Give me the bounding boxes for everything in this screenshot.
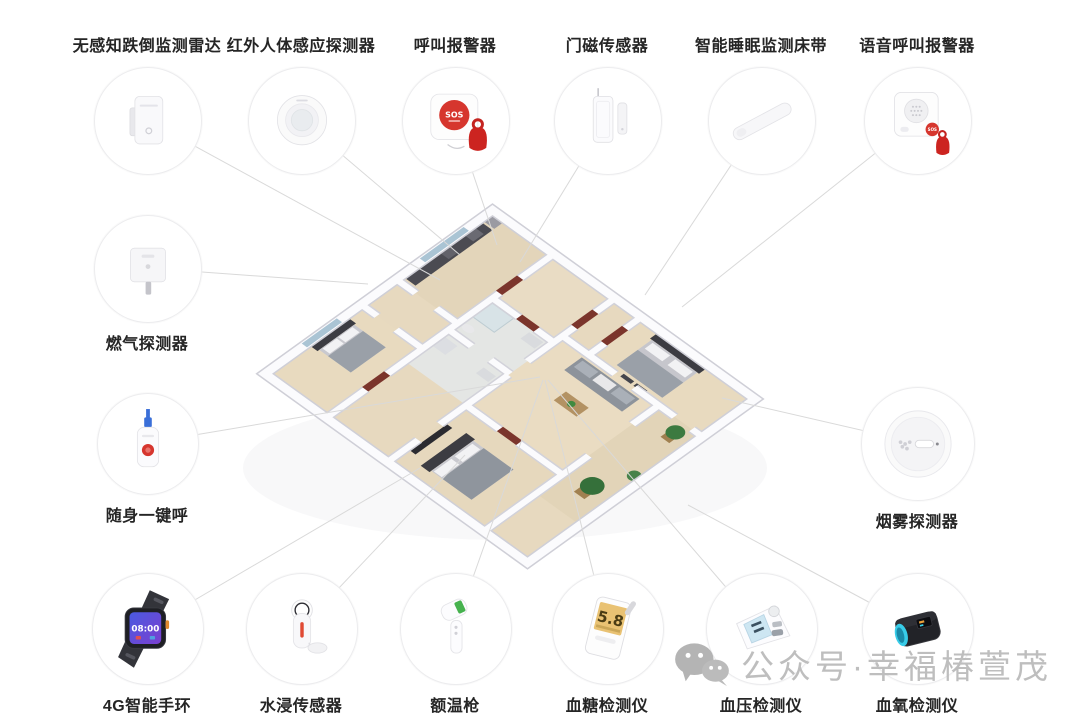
- device-forehead-thermometer: 额温枪: [400, 573, 510, 683]
- device-circle: 5.8: [552, 573, 664, 685]
- sos-call-alarm-icon: SOS: [414, 79, 498, 163]
- device-water-leak-sensor: 水浸传感器: [246, 573, 356, 683]
- sleep-monitor-strip-icon: [720, 79, 804, 163]
- infographic-canvas: 无感知跌倒监测雷达 红外人体感应探测器 呼叫报警器: [0, 0, 1080, 720]
- device-circle: [400, 573, 512, 685]
- device-circle: [97, 393, 199, 495]
- device-label: 血氧检测仪: [787, 692, 1047, 716]
- device-portable-sos-button: 随身一键呼: [97, 393, 197, 493]
- device-circle: [94, 67, 202, 175]
- device-circle: [248, 67, 356, 175]
- watch-time-text: 08:00: [131, 625, 159, 635]
- watermark: 公众号·幸福椿萱茂: [673, 640, 1052, 688]
- device-label: 燃气探测器: [17, 330, 277, 354]
- device-smart-watch-4g: 4G智能手环 08:00: [92, 573, 202, 683]
- smoke-detector-icon: [872, 398, 964, 490]
- voice-call-alarm-icon: SOS: [876, 79, 960, 163]
- water-leak-sensor-icon: [259, 586, 345, 672]
- forehead-thermometer-icon: [413, 586, 499, 672]
- device-smoke-detector: 烟雾探测器: [861, 387, 973, 499]
- device-voice-call-alarm: 语音呼叫报警器 SOS: [864, 67, 970, 173]
- device-glucose-meter: 血糖检测仪 5.8: [552, 573, 662, 683]
- device-circle: [861, 387, 975, 501]
- device-gas-detector: 燃气探测器: [94, 215, 200, 321]
- device-sos-call-alarm: 呼叫报警器 SOS: [402, 67, 508, 173]
- device-circle: [708, 67, 816, 175]
- device-pir-motion-sensor: 红外人体感应探测器: [248, 67, 354, 173]
- device-door-magnet-sensor: 门磁传感器: [554, 67, 660, 173]
- pir-motion-sensor-icon: [261, 80, 343, 162]
- glucose-meter-icon: 5.8: [564, 585, 652, 673]
- wechat-icon: [673, 640, 731, 688]
- sos-button-text: SOS: [445, 111, 464, 120]
- device-label: 随身一键呼: [17, 502, 277, 526]
- device-circle: [554, 67, 662, 175]
- device-label: 语音呼叫报警器: [787, 32, 1047, 56]
- device-circle: SOS: [864, 67, 972, 175]
- voice-alarm-badge-text: SOS: [928, 127, 937, 132]
- device-circle: [246, 573, 358, 685]
- smart-watch-4g-icon: 08:00: [104, 585, 192, 673]
- device-circle: 08:00: [92, 573, 204, 685]
- device-fall-radar: 无感知跌倒监测雷达: [94, 67, 200, 173]
- device-circle: SOS: [402, 67, 510, 175]
- portable-sos-button-icon: [110, 406, 186, 482]
- device-sleep-monitor-strip: 智能睡眠监测床带: [708, 67, 814, 173]
- fall-radar-icon: [107, 80, 189, 162]
- device-label: 烟雾探测器: [787, 508, 1047, 532]
- gas-detector-icon: [108, 229, 188, 309]
- door-magnet-sensor-icon: [567, 80, 649, 162]
- watermark-text: 公众号·幸福椿萱茂: [741, 640, 1052, 688]
- device-circle: [94, 215, 202, 323]
